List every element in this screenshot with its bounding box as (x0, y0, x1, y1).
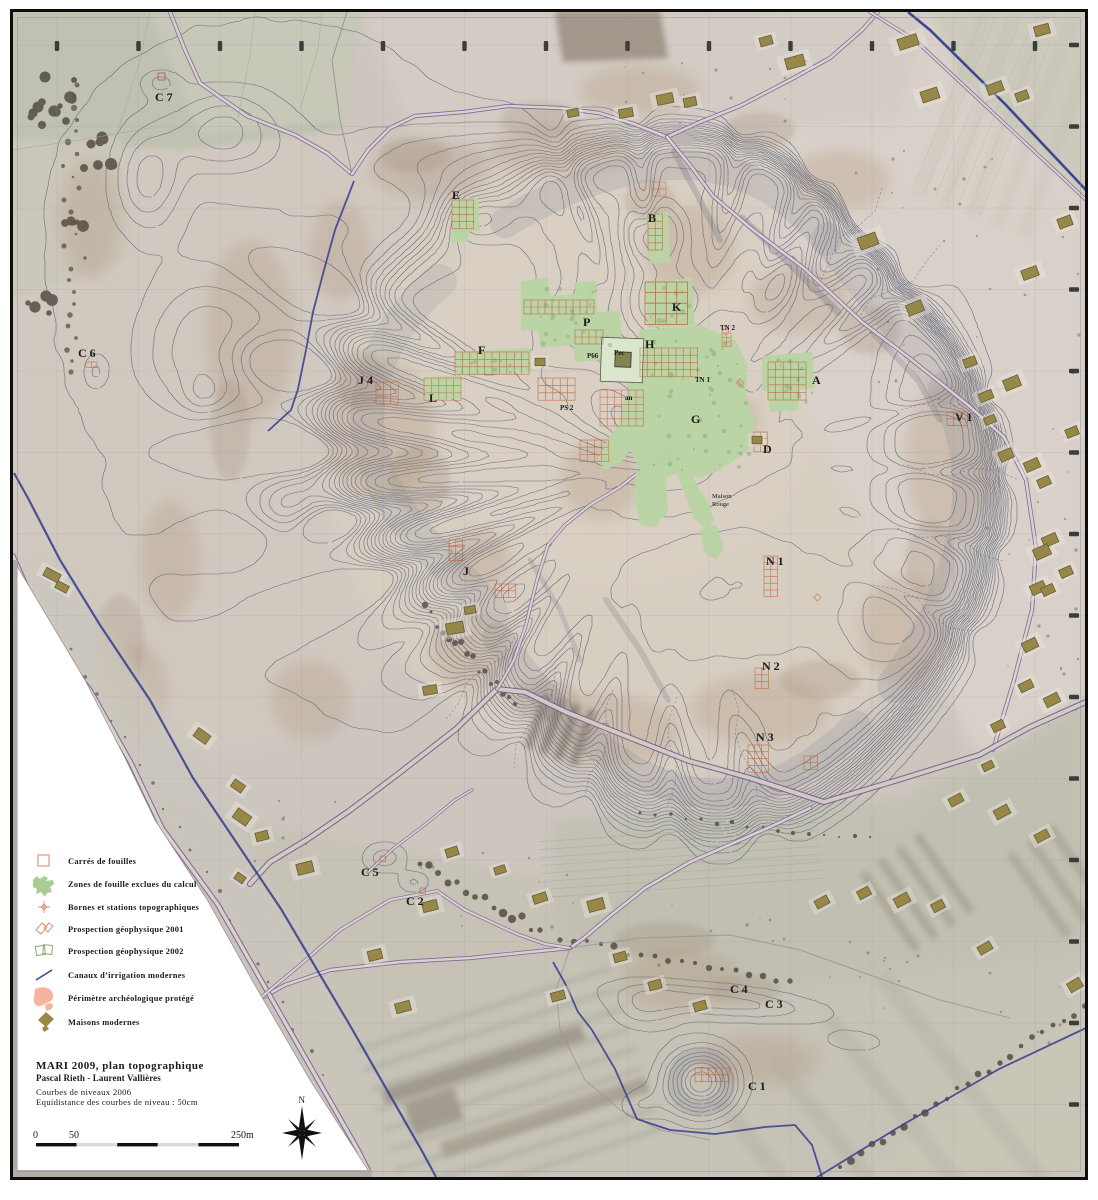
svg-text:MARI 2009, plan topographique: MARI 2009, plan topographique (36, 1060, 204, 1072)
svg-text:C 4: C 4 (730, 982, 748, 996)
svg-text:50: 50 (69, 1130, 79, 1141)
svg-text:B: B (648, 211, 656, 225)
svg-text:Périmètre archéologique protég: Périmètre archéologique protégé (68, 994, 194, 1003)
svg-text:Rouge: Rouge (712, 501, 729, 508)
svg-text:Pec: Pec (614, 349, 625, 357)
svg-text:C 1: C 1 (748, 1079, 766, 1093)
svg-text:TN 2: TN 2 (720, 324, 735, 332)
svg-text:Pascal Rieth - Laurent Vallièr: Pascal Rieth - Laurent Vallières (36, 1073, 161, 1083)
svg-text:F: F (478, 343, 485, 357)
svg-text:N 3: N 3 (756, 730, 774, 744)
svg-text:0: 0 (33, 1130, 38, 1141)
svg-text:Bornes et stations topographiq: Bornes et stations topographiques (68, 903, 200, 912)
svg-text:250m: 250m (231, 1130, 254, 1141)
svg-text:C 7: C 7 (155, 90, 173, 104)
svg-text:P66: P66 (587, 352, 599, 360)
svg-text:Prospection géophysique 2002: Prospection géophysique 2002 (68, 947, 184, 956)
svg-text:E: E (452, 188, 460, 202)
svg-text:K: K (672, 300, 682, 314)
svg-text:C 5: C 5 (361, 865, 379, 879)
svg-text:J 4: J 4 (358, 373, 373, 387)
svg-text:C 2: C 2 (406, 894, 424, 908)
svg-text:Equidistance des courbes de ni: Equidistance des courbes de niveau : 50c… (36, 1097, 198, 1107)
svg-text:C 6: C 6 (78, 346, 96, 360)
svg-text:D: D (763, 442, 772, 456)
svg-text:an: an (625, 394, 633, 402)
svg-text:Maisons modernes: Maisons modernes (68, 1018, 140, 1027)
svg-text:H: H (645, 337, 655, 351)
svg-text:J: J (463, 564, 469, 578)
svg-text:Canaux d’irrigation modernes: Canaux d’irrigation modernes (68, 971, 186, 980)
svg-text:PS 2: PS 2 (560, 404, 574, 412)
svg-text:V 1: V 1 (955, 410, 972, 424)
svg-text:N 1: N 1 (766, 554, 784, 568)
svg-text:P: P (583, 315, 590, 329)
svg-text:Prospection géophysique 2001: Prospection géophysique 2001 (68, 925, 184, 934)
svg-text:Courbes de niveaux 2006: Courbes de niveaux 2006 (36, 1087, 132, 1097)
svg-text:G: G (691, 412, 700, 426)
svg-text:Maison: Maison (712, 493, 732, 500)
svg-text:N 2: N 2 (762, 659, 780, 673)
svg-text:A: A (812, 373, 821, 387)
svg-text:N: N (299, 1095, 306, 1105)
svg-text:L: L (429, 391, 437, 405)
svg-text:Zones de fouille exclues du ca: Zones de fouille exclues du calcul (68, 880, 197, 889)
svg-text:Carrés de fouilles: Carrés de fouilles (68, 857, 137, 866)
svg-text:TN 1: TN 1 (695, 376, 710, 384)
svg-text:C 3: C 3 (765, 997, 783, 1011)
